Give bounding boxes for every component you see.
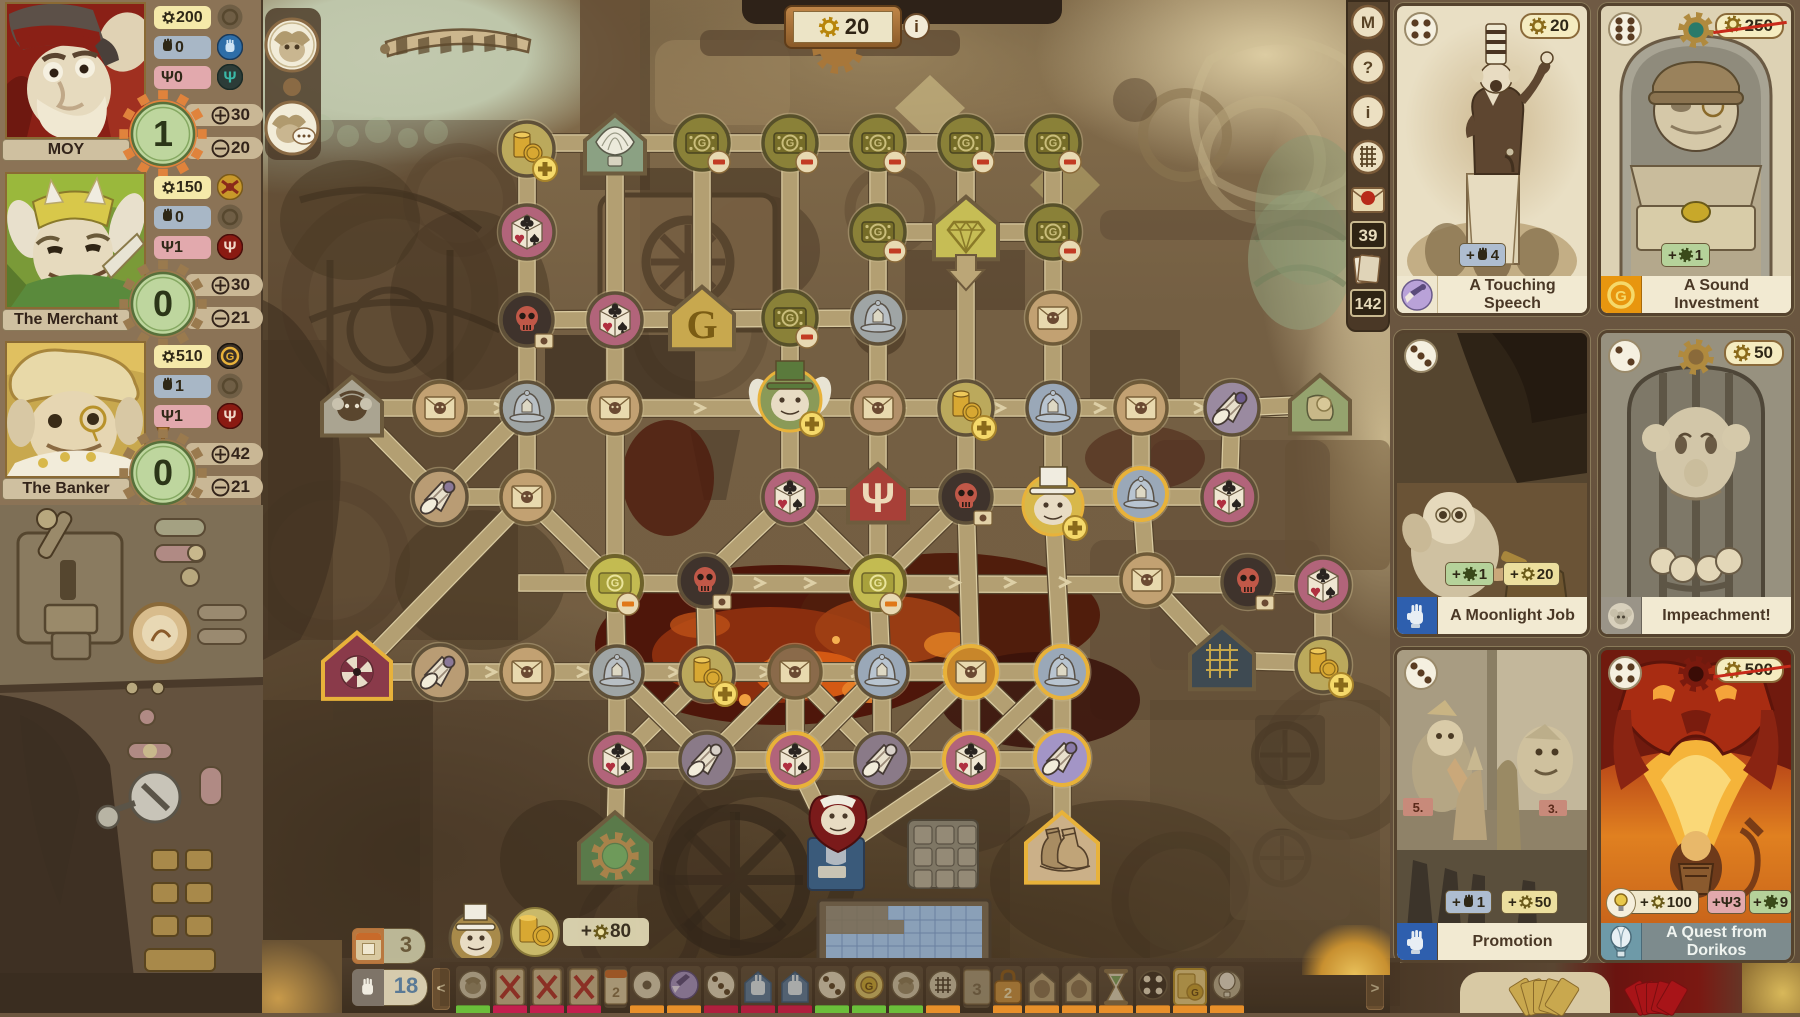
svg-text:5.: 5. [1413,800,1424,815]
svg-text:G: G [1049,227,1058,239]
svg-text:1: 1 [153,113,173,154]
svg-text:G: G [786,313,795,325]
svg-text:Ψ: Ψ [861,474,895,521]
svg-text:G: G [686,302,717,347]
svg-text:G: G [611,578,620,590]
svg-text:G: G [874,578,883,590]
svg-text:G: G [226,351,235,363]
svg-text:Ψ: Ψ [224,240,237,257]
svg-text:G: G [1615,288,1627,305]
svg-text:0: 0 [153,452,173,493]
svg-text:3.: 3. [1548,802,1558,816]
svg-text:G: G [698,138,707,150]
svg-text:Ψ: Ψ [224,70,237,87]
svg-text:0: 0 [153,283,173,324]
svg-text:G: G [874,227,883,239]
svg-text:G: G [962,138,971,150]
svg-text:?: ? [1363,58,1373,77]
svg-text:142: 142 [1355,296,1382,313]
svg-text:Ψ: Ψ [224,409,237,426]
svg-text:M: M [1361,13,1375,32]
svg-text:G: G [1049,138,1058,150]
svg-text:G: G [786,138,795,150]
svg-text:39: 39 [1359,226,1378,245]
svg-text:G: G [874,138,883,150]
svg-text:i: i [1366,103,1371,122]
